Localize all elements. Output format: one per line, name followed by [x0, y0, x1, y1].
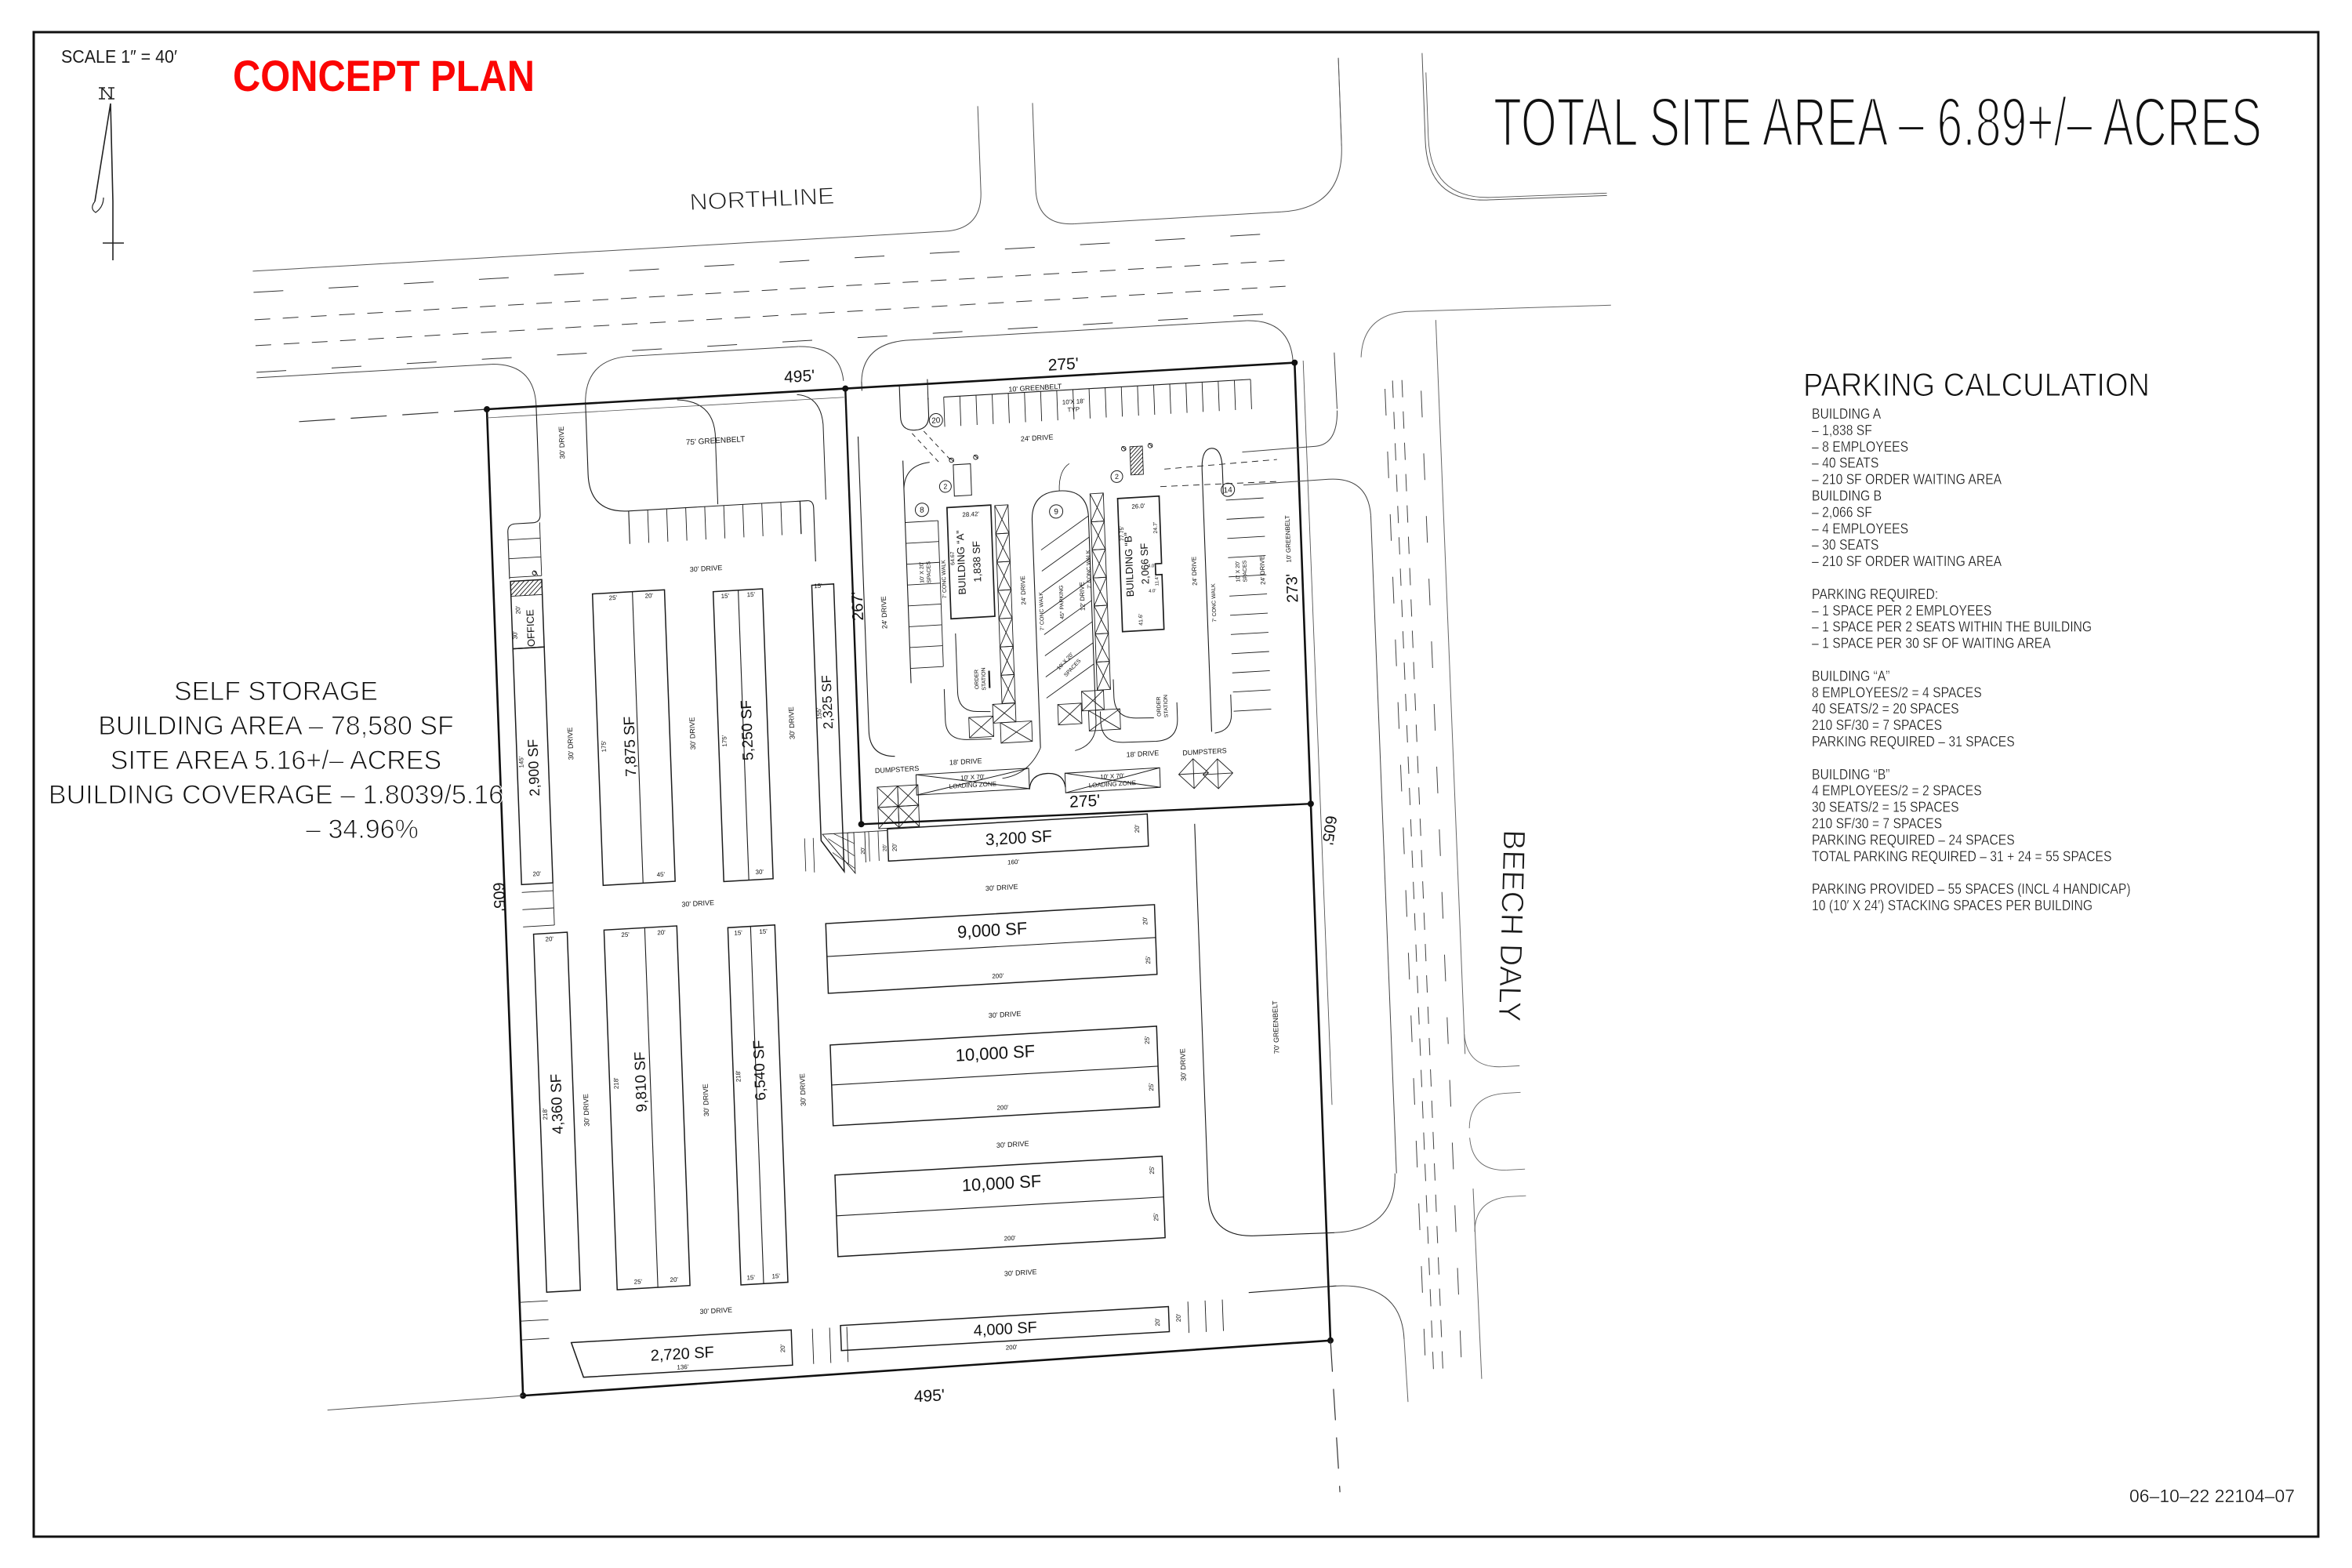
- svg-text:SELF STORAGE: SELF STORAGE: [174, 677, 378, 706]
- svg-text:BEECH DALY: BEECH DALY: [1492, 829, 1531, 1022]
- svg-text:– 1 SPACE PER 2 EMPLOYEES: – 1 SPACE PER 2 EMPLOYEES: [1812, 602, 1991, 619]
- svg-text:– 1,838 SF: – 1,838 SF: [1812, 422, 1872, 439]
- svg-text:– 34.96%: – 34.96%: [306, 815, 419, 844]
- svg-text:4 EMPLOYEES/2 = 2 SPACES: 4 EMPLOYEES/2 = 2 SPACES: [1812, 782, 1982, 799]
- svg-text:145': 145': [517, 756, 525, 768]
- svg-text:20': 20': [883, 844, 888, 852]
- svg-text:20: 20: [931, 416, 941, 426]
- svg-text:TOTAL PARKING REQUIRED – 31 +: TOTAL PARKING REQUIRED – 31 + 24 = 55 SP…: [1812, 848, 2112, 865]
- svg-text:605': 605': [489, 882, 507, 912]
- svg-text:9,810 SF: 9,810 SF: [632, 1051, 651, 1112]
- svg-text:30' DRIVE: 30' DRIVE: [688, 717, 698, 750]
- svg-text:CONCEPT PLAN: CONCEPT PLAN: [233, 51, 535, 100]
- svg-text:30 SEATS/2 = 15 SPACES: 30 SEATS/2 = 15 SPACES: [1812, 798, 1959, 815]
- svg-text:30' DRIVE: 30' DRIVE: [557, 426, 567, 459]
- svg-text:8: 8: [920, 506, 924, 514]
- svg-text:BUILDING “A”: BUILDING “A”: [954, 530, 968, 595]
- svg-text:15': 15': [746, 591, 755, 599]
- svg-text:BUILDING AREA – 78,580 SF: BUILDING AREA – 78,580 SF: [98, 711, 454, 741]
- svg-text:2,900 SF: 2,900 SF: [524, 739, 543, 797]
- svg-text:20': 20': [1134, 824, 1141, 833]
- svg-text:28.42': 28.42': [962, 510, 979, 518]
- svg-text:– 4 EMPLOYEES: – 4 EMPLOYEES: [1812, 520, 1908, 537]
- svg-text:– 1 SPACE PER 2 SEATS WITHIN T: – 1 SPACE PER 2 SEATS WITHIN THE BUILDIN…: [1812, 618, 2092, 635]
- svg-text:41.6': 41.6': [1138, 614, 1145, 626]
- svg-text:TOTAL SITE AREA – 6.89+/– ACRE: TOTAL SITE AREA – 6.89+/– ACRES: [1494, 83, 2262, 161]
- svg-text:10 (10′ X 24′) STACKING SPACES: 10 (10′ X 24′) STACKING SPACES PER BUILD…: [1812, 897, 2092, 914]
- svg-text:20': 20': [545, 935, 554, 943]
- svg-text:STATION: STATION: [1163, 695, 1170, 718]
- svg-text:9,000 SF: 9,000 SF: [957, 918, 1028, 942]
- svg-text:4.0': 4.0': [1148, 564, 1156, 569]
- svg-text:TYP: TYP: [1067, 405, 1080, 413]
- svg-text:30': 30': [511, 630, 518, 639]
- svg-text:8 EMPLOYEES/2 = 4 SPACES: 8 EMPLOYEES/2 = 4 SPACES: [1812, 684, 1982, 701]
- svg-text:77.75': 77.75': [1120, 526, 1126, 541]
- svg-text:SPACES: SPACES: [926, 561, 932, 583]
- svg-text:275': 275': [1047, 354, 1079, 374]
- svg-text:30' DRIVE: 30' DRIVE: [798, 1073, 808, 1106]
- svg-text:200': 200': [992, 972, 1004, 980]
- svg-text:40 SEATS/2 = 20 SPACES: 40 SEATS/2 = 20 SPACES: [1812, 700, 1959, 717]
- svg-text:– 2,066 SF: – 2,066 SF: [1812, 503, 1872, 521]
- svg-text:25': 25': [1148, 1083, 1155, 1091]
- svg-text:1,838 SF: 1,838 SF: [970, 540, 983, 583]
- svg-text:20': 20': [1142, 916, 1149, 925]
- svg-text:BUILDING A: BUILDING A: [1812, 405, 1882, 423]
- svg-text:200': 200': [1006, 1344, 1018, 1352]
- svg-text:5,250 SF: 5,250 SF: [739, 699, 757, 760]
- svg-text:6,540 SF: 6,540 SF: [751, 1040, 770, 1101]
- svg-text:218': 218': [612, 1077, 620, 1090]
- svg-text:25': 25': [621, 931, 630, 938]
- svg-text:PARKING REQUIRED – 31 SPACES: PARKING REQUIRED – 31 SPACES: [1812, 733, 2015, 750]
- svg-text:20': 20': [861, 847, 866, 855]
- svg-text:06–10–22 22104–07: 06–10–22 22104–07: [2129, 1486, 2295, 1506]
- svg-text:30' DRIVE: 30' DRIVE: [787, 706, 797, 739]
- svg-text:273': 273': [1283, 573, 1301, 603]
- svg-text:STATION: STATION: [981, 667, 987, 691]
- svg-text:BUILDING “A”: BUILDING “A”: [1812, 667, 1890, 684]
- svg-text:SPACES: SPACES: [1242, 560, 1248, 583]
- svg-text:20': 20': [1154, 1317, 1161, 1326]
- svg-text:12' DRIVE: 12' DRIVE: [1078, 582, 1086, 612]
- svg-text:11.4': 11.4': [1155, 576, 1160, 586]
- svg-text:64.67: 64.67: [950, 551, 956, 565]
- svg-text:4,360 SF: 4,360 SF: [548, 1073, 567, 1134]
- svg-text:– 210 SF ORDER WAITING AREA: – 210 SF ORDER WAITING AREA: [1812, 553, 2002, 570]
- svg-text:200': 200': [1004, 1235, 1016, 1243]
- svg-text:30' DRIVE: 30' DRIVE: [582, 1094, 591, 1127]
- svg-text:– 40 SEATS: – 40 SEATS: [1812, 454, 1878, 471]
- svg-text:– 30 SEATS: – 30 SEATS: [1812, 536, 1878, 554]
- svg-text:10' X 70': 10' X 70': [960, 773, 985, 782]
- svg-text:15': 15': [746, 1274, 755, 1282]
- svg-text:4.0': 4.0': [1149, 589, 1156, 594]
- svg-text:– 8 EMPLOYEES: – 8 EMPLOYEES: [1812, 438, 1908, 456]
- svg-text:BUILDING COVERAGE – 1.8039/5.1: BUILDING COVERAGE – 1.8039/5.16: [49, 780, 503, 810]
- svg-text:20': 20': [644, 592, 653, 600]
- svg-text:15': 15': [814, 583, 822, 590]
- svg-text:45° PARKING: 45° PARKING: [1058, 585, 1066, 619]
- svg-text:3,200 SF: 3,200 SF: [985, 827, 1052, 849]
- svg-text:ORDER: ORDER: [974, 670, 980, 690]
- svg-text:20': 20': [1175, 1313, 1182, 1322]
- svg-text:275': 275': [1069, 792, 1101, 811]
- svg-text:20': 20': [514, 605, 521, 614]
- svg-text:210 SF/30 = 7 SPACES: 210 SF/30 = 7 SPACES: [1812, 815, 1942, 832]
- svg-text:SITE AREA 5.16+/– ACRES: SITE AREA 5.16+/– ACRES: [111, 746, 441, 775]
- svg-text:2: 2: [1115, 473, 1119, 481]
- svg-text:24' DRIVE: 24' DRIVE: [880, 596, 889, 629]
- svg-text:218': 218': [735, 1070, 742, 1083]
- svg-text:25': 25': [1152, 1212, 1160, 1221]
- svg-text:2,325 SF: 2,325 SF: [819, 675, 836, 730]
- svg-text:14: 14: [1223, 486, 1232, 495]
- svg-text:25': 25': [1149, 1166, 1156, 1174]
- svg-text:26.0': 26.0': [1131, 503, 1145, 510]
- svg-text:BUILDING “B”: BUILDING “B”: [1122, 532, 1136, 597]
- svg-text:SCALE 1″ = 40′: SCALE 1″ = 40′: [61, 46, 177, 67]
- svg-text:30': 30': [755, 869, 764, 877]
- svg-text:25': 25': [1145, 956, 1152, 964]
- svg-text:495': 495': [913, 1386, 945, 1406]
- svg-text:10' X 20': 10' X 20': [919, 562, 925, 583]
- svg-text:24' DRIVE: 24' DRIVE: [1019, 575, 1027, 605]
- svg-text:9: 9: [1054, 508, 1058, 517]
- svg-text:25': 25': [609, 594, 618, 602]
- svg-text:15': 15': [721, 593, 730, 601]
- svg-text:136': 136': [677, 1363, 689, 1371]
- svg-text:24' DRIVE: 24' DRIVE: [1190, 557, 1198, 586]
- svg-text:10' X 70': 10' X 70': [1100, 772, 1124, 781]
- svg-text:10'X 18': 10'X 18': [1062, 397, 1085, 406]
- svg-text:160': 160': [1007, 858, 1020, 866]
- svg-text:210 SF/30 = 7 SPACES: 210 SF/30 = 7 SPACES: [1812, 717, 1942, 734]
- svg-text:PARKING REQUIRED – 24 SPACES: PARKING REQUIRED – 24 SPACES: [1812, 831, 2015, 848]
- svg-text:15': 15': [759, 927, 768, 935]
- svg-text:ORDER: ORDER: [1156, 696, 1163, 717]
- svg-text:– 210 SF ORDER WAITING AREA: – 210 SF ORDER WAITING AREA: [1812, 470, 2002, 488]
- svg-text:20': 20': [891, 843, 898, 851]
- svg-text:OFFICE: OFFICE: [524, 609, 537, 648]
- svg-text:20': 20': [779, 1344, 786, 1352]
- svg-text:15': 15': [734, 929, 742, 937]
- svg-text:24.7': 24.7': [1153, 521, 1160, 533]
- svg-text:495': 495': [784, 367, 815, 387]
- svg-text:30' DRIVE: 30' DRIVE: [702, 1083, 711, 1116]
- svg-text:30' DRIVE: 30' DRIVE: [1178, 1048, 1188, 1081]
- svg-text:175': 175': [601, 740, 608, 753]
- svg-text:24' DRIVE: 24' DRIVE: [1258, 556, 1266, 586]
- svg-text:45': 45': [656, 871, 665, 879]
- svg-text:2: 2: [943, 482, 947, 490]
- svg-text:25': 25': [1144, 1036, 1151, 1044]
- svg-text:4,000 SF: 4,000 SF: [973, 1319, 1037, 1340]
- svg-text:30' DRIVE: 30' DRIVE: [566, 727, 575, 760]
- svg-text:218': 218': [542, 1108, 550, 1120]
- svg-text:7,875 SF: 7,875 SF: [621, 716, 640, 777]
- svg-text:BUILDING B: BUILDING B: [1812, 487, 1882, 504]
- svg-text:– 1 SPACE PER 30 SF OF WAITING: – 1 SPACE PER 30 SF OF WAITING AREA: [1812, 634, 2051, 652]
- svg-text:20': 20': [657, 929, 666, 937]
- svg-text:10' X 20': 10' X 20': [1236, 561, 1242, 583]
- svg-text:200': 200': [996, 1104, 1009, 1112]
- svg-text:PARKING CALCULATION: PARKING CALCULATION: [1803, 366, 2150, 403]
- svg-text:25': 25': [634, 1278, 643, 1286]
- svg-text:15': 15': [771, 1272, 780, 1280]
- svg-text:2,720 SF: 2,720 SF: [650, 1344, 714, 1365]
- svg-text:BUILDING “B”: BUILDING “B”: [1812, 766, 1890, 783]
- svg-text:PARKING PROVIDED – 55 SPACES (: PARKING PROVIDED – 55 SPACES (INCL 4 HAN…: [1812, 880, 2131, 898]
- svg-text:175': 175': [720, 735, 728, 747]
- svg-text:20': 20': [670, 1276, 678, 1284]
- svg-text:20': 20': [532, 870, 541, 878]
- svg-text:PARKING REQUIRED:: PARKING REQUIRED:: [1812, 586, 1938, 603]
